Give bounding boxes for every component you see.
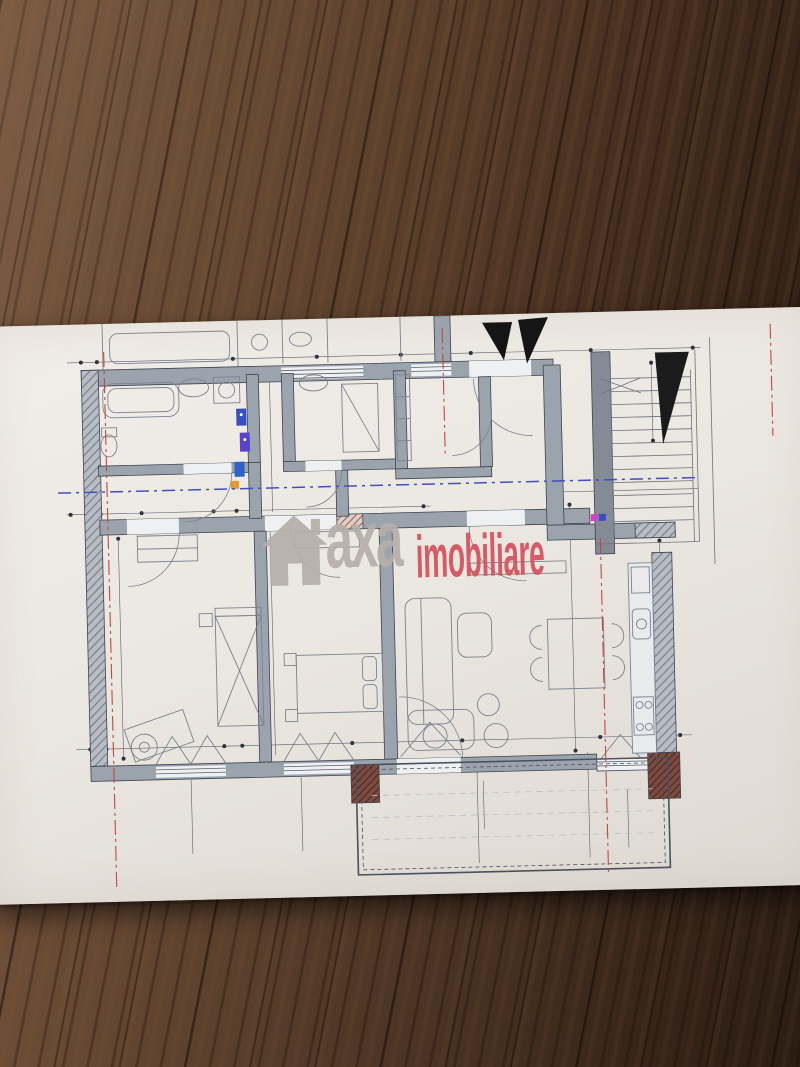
plan-labels-layer <box>0 307 800 905</box>
floorplan-paper: axa imobiliare <box>0 307 800 905</box>
photo-scene: axa imobiliare <box>0 0 800 1067</box>
